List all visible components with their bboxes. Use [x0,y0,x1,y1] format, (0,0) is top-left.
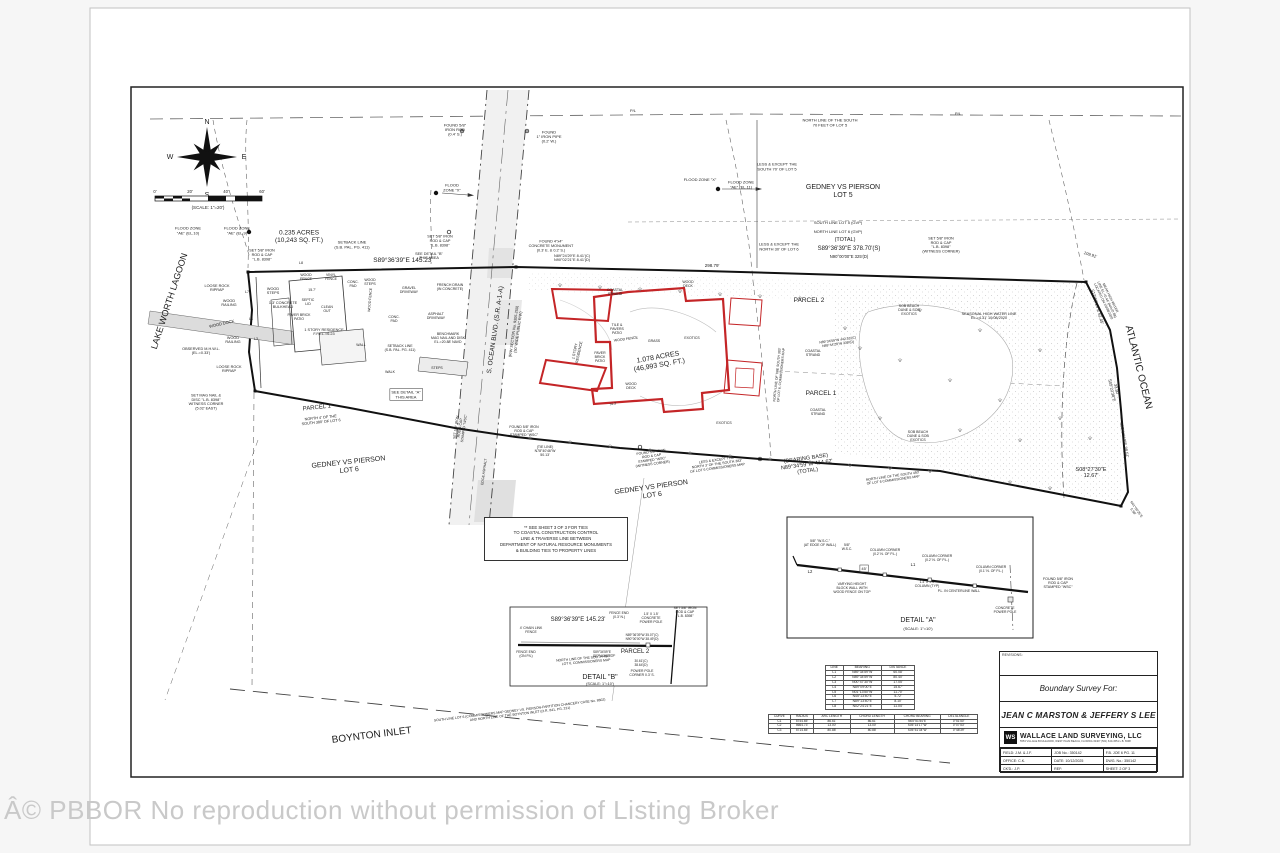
table-cell: N02°24'21"E [843,705,881,710]
compass-w: W [167,154,174,161]
table-row: CK'D.: J.P.REF:SHEET: 2 OF 3 [1001,765,1157,773]
scale-tick: 0' [153,189,156,194]
map-label: N89°24'29"E 8.41'(C)N90°02'21"E 8.41'(D) [554,254,591,262]
map-label: 30.61'(C)38.64'(D) [634,659,647,667]
note-line: & BUILDING TIES TO PROPERTY LINES [485,548,627,554]
map-label: L7 [245,290,249,294]
scale-tick: 40' [223,189,229,194]
compass-e: E [242,154,247,161]
map-label: 298.79' [705,263,720,268]
map-label: SET 5/8" IRONROD & CAP"L.B. 8398" [674,606,697,618]
map-label: GRASS [648,339,661,343]
map-label: CONCRETEPOWER POLE [994,606,1018,614]
map-label: DETAIL "B" [582,674,618,681]
map-label: COASTALSTRAND [805,349,821,357]
map-label: (SCALE: 1"=10') [586,682,614,686]
company-name: WALLACE LAND SURVEYING, LLC [1020,733,1153,740]
map-label: DETAIL "A" [900,617,936,624]
table-cell: 80.88' [850,729,894,734]
map-label: COLUMN CORNER(0.1' N. OF P.L.) [976,565,1007,573]
map-label: FLOOD ZONE"AE" (EL.11) [728,180,754,190]
map-label: S89°34'59"ES87°44'56"E [593,650,611,658]
table-cell: SHEET: 2 OF 3 [1103,765,1156,773]
map-label: WOODSTEPS [364,278,376,286]
map-label: WOODDECK [682,280,694,288]
map-label: PARCEL 1 [806,390,837,397]
map-label: FRENCH DRAIN(IN CONCRETE) [437,283,464,291]
table-row: FIELD: J.M. & J.F.JOB No.: 350142F.B. JO… [1001,749,1157,757]
map-label: L4 [249,317,253,321]
map-label: SET 5/8" IRONROD & CAP"L.B. 8398" [427,235,453,248]
map-label: SETBACK LINE(S.B. PAL. PG. 411) [385,344,416,352]
map-label: WOODSTEPS [267,287,280,295]
table-cell: DATE: 10/12/2025 [1052,757,1104,765]
watermark: Â© PBBOR No reproduction without permiss… [4,795,779,826]
map-label: POWER POLECORNER 0.3' S. [629,669,654,677]
company-logo: WS [1004,731,1017,744]
map-label: 45' [861,566,866,571]
company-address: 5553 VILLAGE BOULEVARD, WEST PALM BEACH,… [1020,740,1153,743]
survey-sheet: N E S W 0' 20' 40' 60' (SCALE: 1"=20') [0,0,1280,853]
map-label: L2 [808,569,813,574]
table-row: L8N02°24'21"E11.04' [826,705,915,710]
client-name: JEAN C MARSTON & JEFFERY S LEE [1000,702,1157,728]
table-cell: OFFICE: C.K. [1001,757,1052,765]
map-label: S89°36'39"E 145.23' [551,617,606,623]
map-label: COLUMN CORNER(0.2' N. OF P.L.) [870,548,901,556]
map-label: PAVERBRICKPATIO [594,351,606,363]
table-cell: F.B. JOE 6 PG. 11 [1103,749,1156,757]
map-label: SET 5/8" IRONROD & CAP"L.B. 8398" [249,249,275,262]
scale-tick: 60' [259,189,265,194]
map-label: L3 [254,337,258,341]
map-label: WOODFENCE [300,273,313,281]
table-cell: 11.04' [881,705,914,710]
map-label: PARCEL 2 [621,649,650,655]
map-label: (TOTAL) [835,237,856,243]
map-label: NORTH LINE LOT 6 (GVP) [814,229,863,234]
title-block: REVISIONS: Boundary Survey For: JEAN C M… [999,651,1158,772]
map-label: N90°00'00"E 325'(D) [830,254,869,259]
table-cell: FIELD: J.M. & J.F. [1001,749,1052,757]
map-label: EXOTICS [716,421,732,425]
map-label: COASTALSTRAND [607,288,623,296]
map-label: FLOOD ZONE"AE" (EL.9) [224,226,250,236]
map-label: WOODDECK [625,382,637,390]
map-label: N89°36'39"W 35.07'(C)N90°00'00"W 38.49'(… [626,633,659,641]
scale-caption: (SCALE: 1"=20') [192,205,225,210]
map-label: SETBACK LINE(S.B. PAL. PG. 411) [334,240,370,250]
map-label: COLUMN CORNER(0.2' N. OF P.L.) [922,554,953,562]
map-label: GRAVELDRIVEWAY [400,286,419,294]
map-label: FLOOD ZONE "X" [684,177,717,182]
survey-for-label: Boundary Survey For: [1000,676,1157,702]
map-label: PARCEL 2 [794,297,825,304]
table-cell: 5714.65' [790,729,813,734]
map-label: COASTALSTRAND [810,408,826,416]
map-label: STEPS [431,366,443,370]
map-label: WALL [356,343,365,347]
map-label: WALK [385,370,395,374]
table-cell: REF: [1052,765,1104,773]
map-label: 0.235 ACRES(10,243 SQ. FT.) [275,229,323,243]
map-label: VINYLFENCE [325,273,338,281]
scale-tick: 20' [187,189,193,194]
map-label: ASPHALTDRIVEWAY [427,312,446,320]
company-row: WS WALLACE LAND SURVEYING, LLC 5553 VILL… [1000,728,1157,748]
table-cell: C3 [769,729,791,734]
title-grid: FIELD: J.M. & J.F.JOB No.: 350142F.B. JO… [1000,748,1157,773]
map-label: 15.7' [308,288,316,292]
map-label: FLOODZONE "X" [443,183,461,193]
map-label: SOUTH LINE LOT 5 (GVP) [814,220,863,225]
table-cell: CK'D.: J.P. [1001,765,1052,773]
revisions-label: REVISIONS: [1000,652,1157,676]
map-label: LESS & EXCEPT THESOUTH 70' OF LOT 5 [757,162,797,172]
table-row: OFFICE: C.K.DATE: 10/12/2025DWG. No.: 35… [1001,757,1157,765]
line-table: LINEBEARINGDISTANCEL1N89°34'59"W60.08'L2… [825,665,915,710]
company-logo-initials: WS [1006,735,1016,741]
map-label: WOODRAILING [221,299,236,307]
table-cell: S05°51'34"W [894,729,940,734]
map-label: P/L [630,108,637,113]
table-cell: L8 [826,705,844,710]
table-cell: JOB No.: 350142 [1052,749,1104,757]
map-label: (SCALE: 1"=10') [903,626,933,631]
map-label: P.L. IN CENTERLINE WALL [938,589,981,593]
map-label: S89°36'39"E 378.70'(S) [818,246,881,252]
map-label: P/L [955,111,962,116]
table-cell: 80.88' [814,729,850,734]
map-label: LESS & EXCEPT THENORTH 30' OF LOT 6 [759,242,799,252]
table-row: C35714.65'80.88'80.88'S05°51'34"W0°48'39… [769,729,978,734]
table-cell: DWG. No.: 350142 [1103,757,1156,765]
map-label: VARYING HEIGHTBLOCK WALL WITHWOOD FENCE … [833,582,871,594]
map-label: L8 [299,261,303,265]
map-label: L1 [911,562,916,567]
sheet-note: ** SEE SHEET 3 OF 3 FOR TIESTO COASTAL C… [484,517,628,561]
map-label: WOODRAILING [225,336,240,344]
compass-n: N [204,119,209,126]
table-cell: 0°48'39" [940,729,977,734]
map-label: FLOOD ZONE"AE" (EL.10) [175,226,201,236]
map-label: EXOTICS [684,336,700,340]
curve-table: CURVERADIUSARC LENGTHCHORD LENGTHCHORD B… [768,714,978,734]
